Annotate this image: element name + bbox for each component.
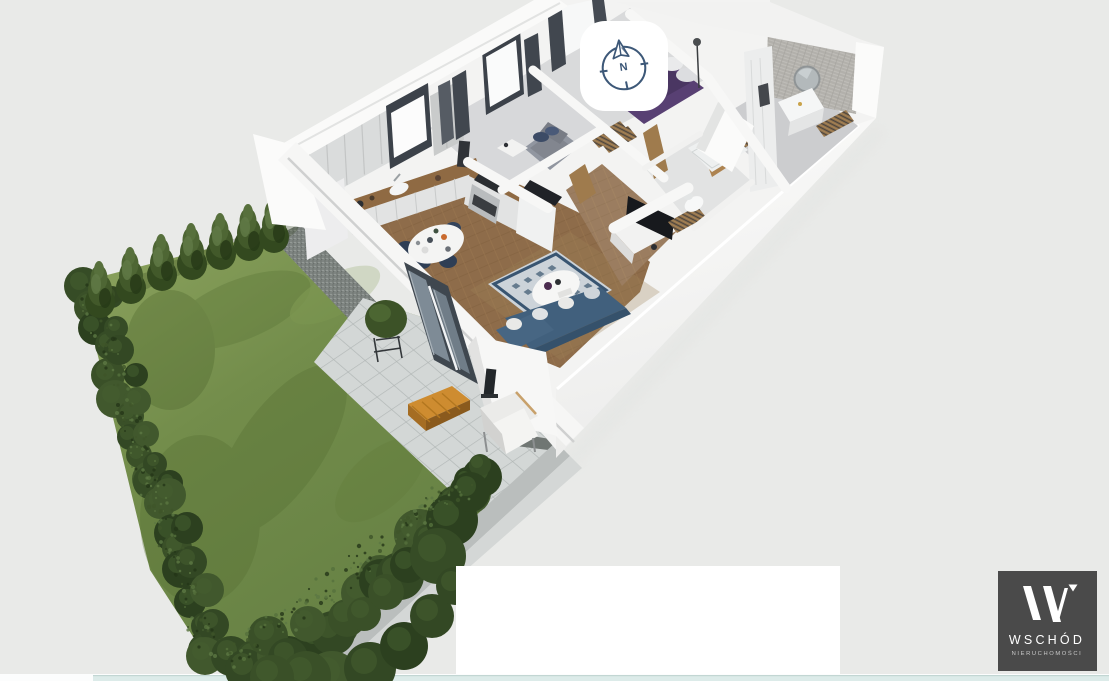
svg-text:WSCHÓD: WSCHÓD [1009, 632, 1085, 647]
svg-text:NIERUCHOMOŚCI: NIERUCHOMOŚCI [1012, 649, 1083, 657]
svg-text:N: N [619, 61, 629, 74]
